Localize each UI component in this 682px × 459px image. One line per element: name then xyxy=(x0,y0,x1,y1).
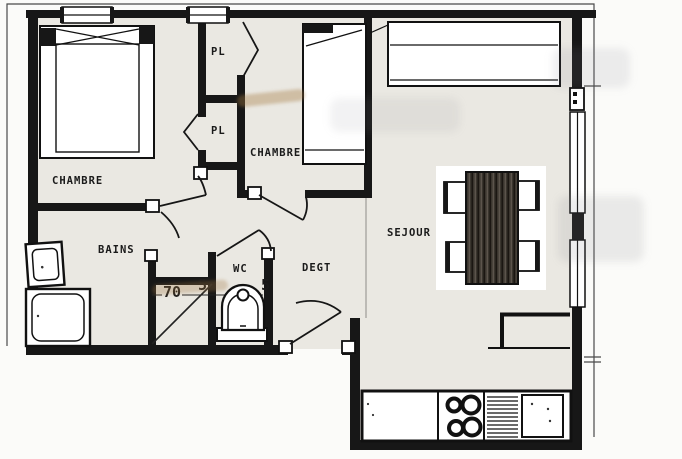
sofa xyxy=(370,22,560,86)
dining-set xyxy=(436,166,546,290)
floor-plan-drawing xyxy=(0,0,682,459)
room-label-bains: BAINS xyxy=(98,245,135,256)
floor-plan-page: CHAMBRE CHAMBRE SEJOUR BAINS WC DEGT PL … xyxy=(0,0,682,459)
kitchen-block xyxy=(362,391,571,441)
room-label-degt: DEGT xyxy=(302,263,331,274)
room-label-wc: WC xyxy=(233,264,248,275)
glass-door-right-upper xyxy=(570,112,585,213)
window-top-left xyxy=(60,7,114,23)
glass-door-right-lower xyxy=(570,240,585,307)
room-label-chambre1: CHAMBRE xyxy=(52,176,103,187)
room-label-sejour: SEJOUR xyxy=(387,228,431,239)
room-label-chambre2: CHAMBRE xyxy=(250,148,301,159)
room-label-pl-bottom: PL xyxy=(211,126,226,137)
dimension-shaft-width: 70 xyxy=(162,285,182,300)
dimension-wall-right: 5 xyxy=(260,278,271,293)
single-bed xyxy=(303,24,366,164)
dimension-wall-left: 5 xyxy=(197,278,208,293)
utility-box xyxy=(570,88,584,110)
room-label-pl-top: PL xyxy=(211,47,226,58)
bathtub xyxy=(26,289,90,346)
washbasin xyxy=(26,242,65,287)
dining-table xyxy=(466,172,518,284)
sink-basin xyxy=(522,395,563,437)
window-top-center xyxy=(186,7,230,23)
double-bed xyxy=(40,26,154,158)
